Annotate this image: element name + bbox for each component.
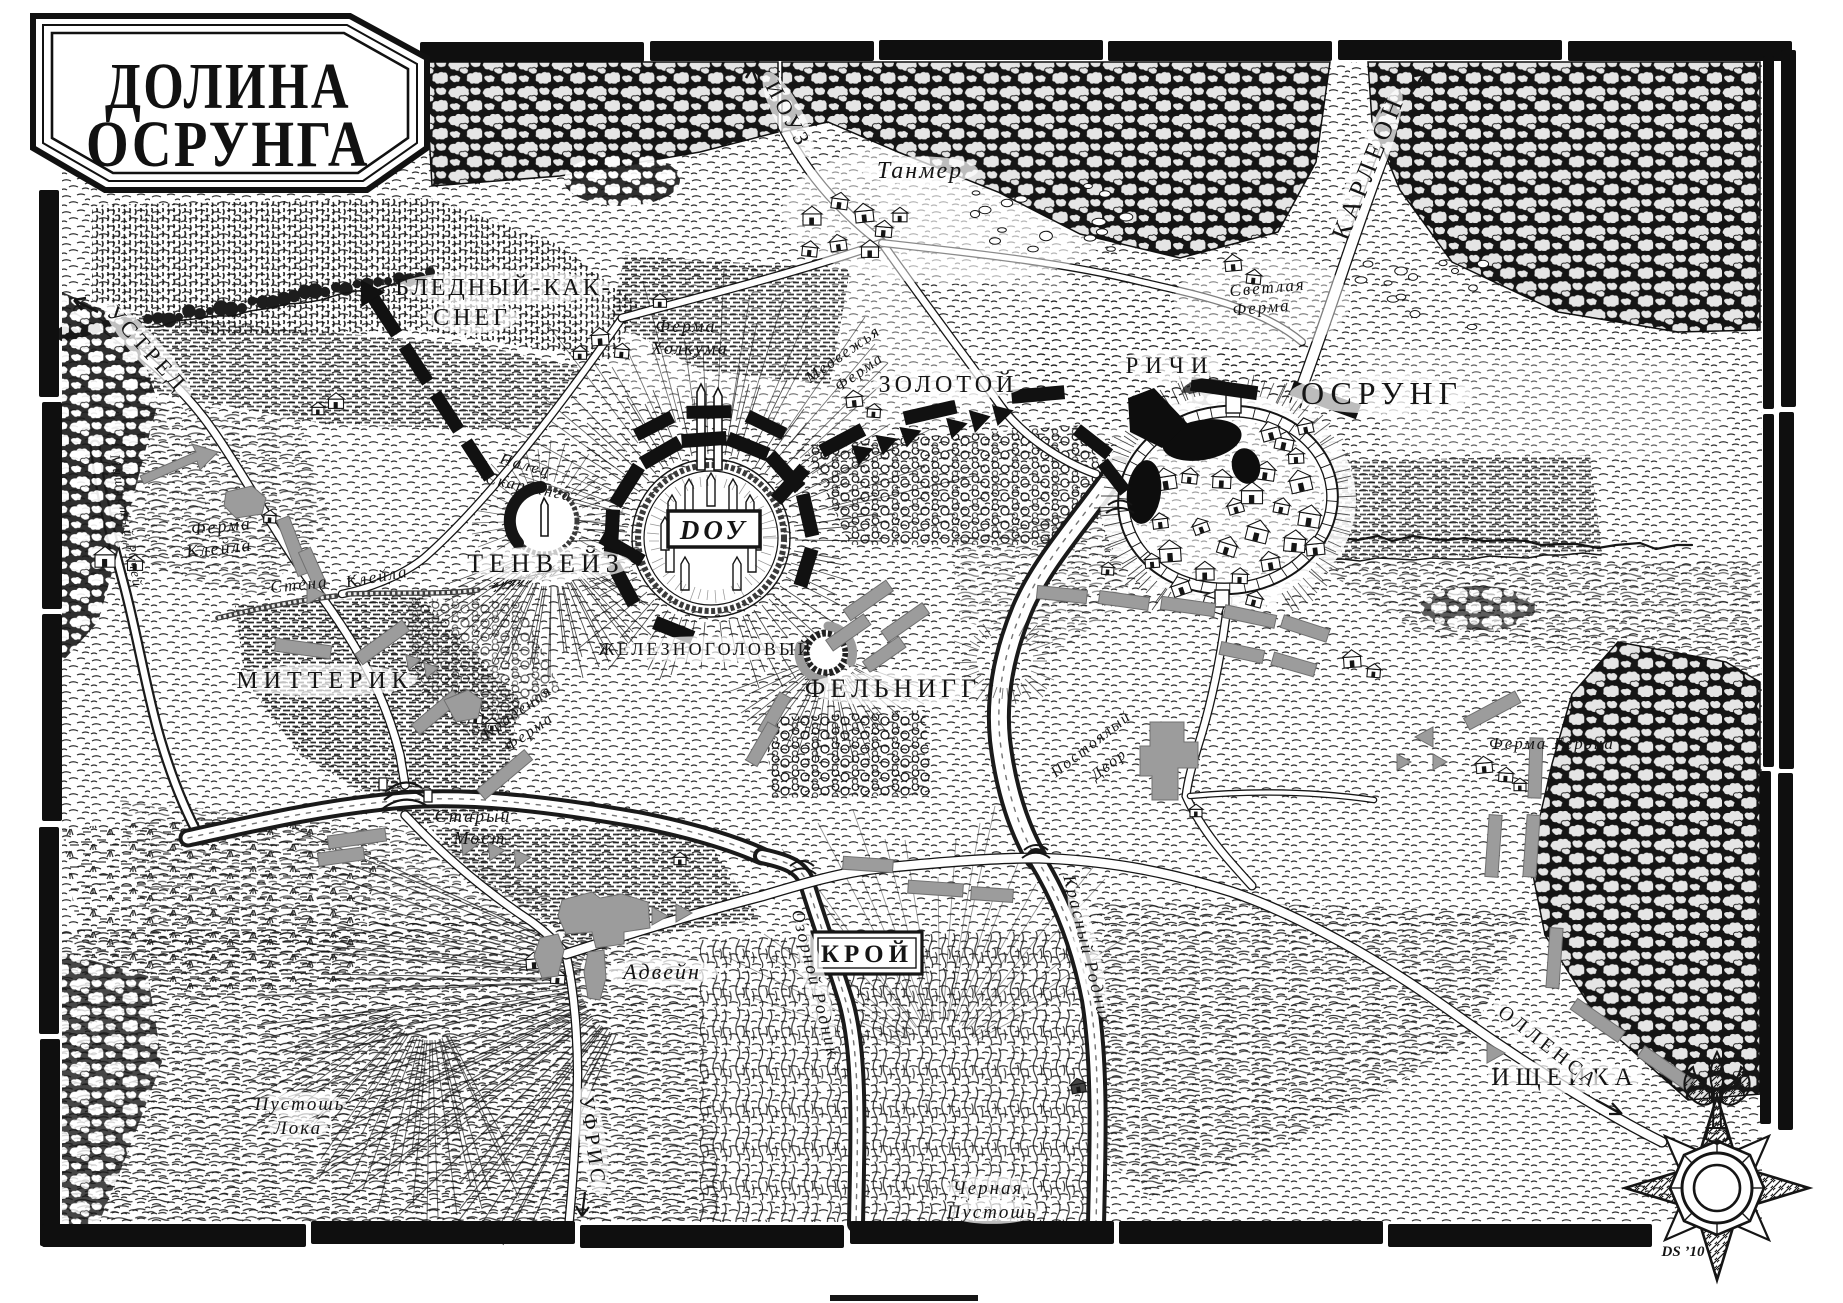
svg-text:СНЕГ: СНЕГ <box>433 305 511 331</box>
svg-text:Танмер: Танмер <box>877 158 963 184</box>
svg-text:БЛЕДНЫЙ-КАК-: БЛЕДНЫЙ-КАК- <box>395 275 612 301</box>
svg-text:Мост: Мост <box>453 828 507 848</box>
svg-text:Холкума: Холкума <box>650 338 728 358</box>
svg-text:КРОЙ: КРОЙ <box>821 940 913 968</box>
svg-text:Ферма Герэна: Ферма Герэна <box>1489 734 1615 753</box>
svg-text:DS ’10: DS ’10 <box>1661 1244 1705 1260</box>
svg-text:РИЧИ: РИЧИ <box>1126 353 1215 378</box>
svg-text:ФЕЛЬНИГГ: ФЕЛЬНИГГ <box>805 674 981 703</box>
svg-text:Лока: Лока <box>273 1118 322 1139</box>
svg-text:Адвейн: Адвейн <box>621 959 701 984</box>
svg-text:Пустошь: Пустошь <box>946 1202 1038 1223</box>
svg-text:Пустошь: Пустошь <box>254 1094 346 1115</box>
svg-text:Ферма: Ферма <box>655 316 716 336</box>
svg-text:ОСРУНГ: ОСРУНГ <box>1301 375 1463 411</box>
svg-text:DОУ: DОУ <box>679 515 748 545</box>
svg-text:Старый: Старый <box>435 806 512 826</box>
svg-text:ОСРУНГА: ОСРУНГА <box>86 108 370 181</box>
svg-text:Черная: Черная <box>953 1178 1024 1199</box>
svg-text:ЖЕЛЕЗНОГОЛОВЫЙ: ЖЕЛЕЗНОГОЛОВЫЙ <box>598 639 813 659</box>
svg-text:МИТТЕРИК: МИТТЕРИК <box>236 668 413 694</box>
svg-text:ТЕНВЕЙЗ: ТЕНВЕЙЗ <box>467 549 625 578</box>
svg-text:ЗОЛОТОЙ: ЗОЛОТОЙ <box>879 372 1018 398</box>
